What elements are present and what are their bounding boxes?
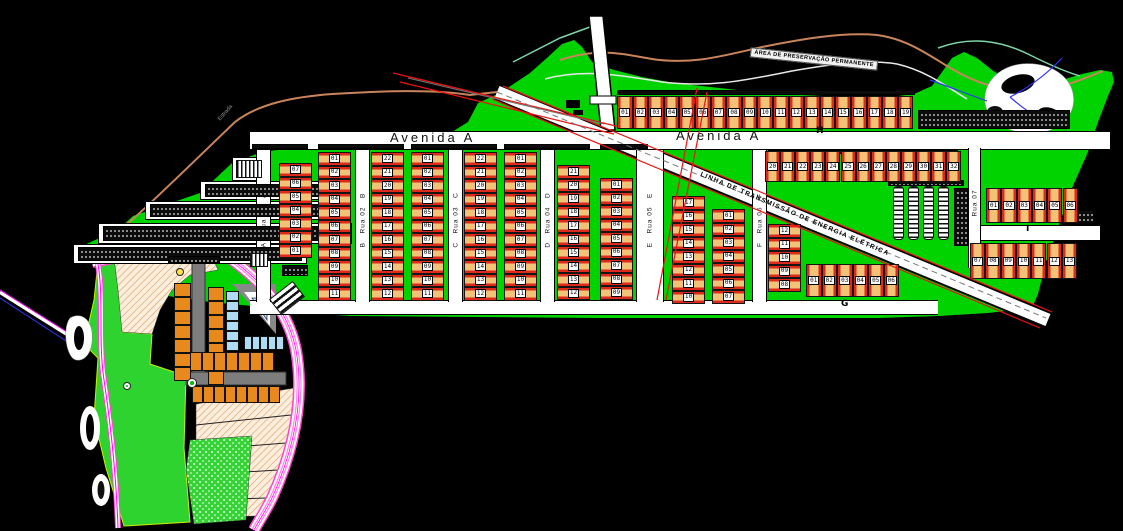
lot: 17 xyxy=(557,219,590,233)
lot-number: 16 xyxy=(568,235,579,244)
lot-number: 08 xyxy=(779,280,790,289)
lot-number: 03 xyxy=(290,219,301,228)
lot: 09 xyxy=(318,260,351,274)
sub-lot xyxy=(203,386,214,403)
sub-lot xyxy=(226,352,238,371)
lot-number: 03 xyxy=(515,181,526,190)
street-rua-03: C Rua 03 C xyxy=(448,150,463,302)
lot-number: 25 xyxy=(842,162,853,171)
lot: 04 xyxy=(504,193,537,207)
lot-number: 08 xyxy=(987,257,998,266)
sub-lot xyxy=(262,352,274,371)
lot-number: 09 xyxy=(611,288,622,297)
lot-number: 20 xyxy=(767,162,778,171)
lot: 13 xyxy=(371,274,404,288)
lot-number: 09 xyxy=(329,262,340,271)
lot-number: 09 xyxy=(1003,257,1014,266)
lot-number: 08 xyxy=(611,275,622,284)
lot-number: 11 xyxy=(683,279,694,288)
lot: 05 xyxy=(868,264,884,297)
lot: 11 xyxy=(504,287,537,301)
lot-number: 24 xyxy=(827,162,838,171)
lot: 10 xyxy=(1016,243,1031,279)
lot: 01 xyxy=(600,178,633,192)
lot-number: 05 xyxy=(870,276,881,285)
lot-number: 19 xyxy=(568,194,579,203)
lot: 05 xyxy=(318,206,351,220)
lot: 02 xyxy=(411,166,444,180)
lot-number: 11 xyxy=(1033,257,1044,266)
subdivision-hatched-field xyxy=(114,256,218,334)
lot-number: 07 xyxy=(329,235,340,244)
lot: 02 xyxy=(822,264,838,297)
lot-number: 09 xyxy=(744,108,755,117)
lot: 21 xyxy=(464,166,497,180)
lot-number: 31 xyxy=(933,162,944,171)
lot: 08 xyxy=(504,247,537,261)
lot-number: 18 xyxy=(568,208,579,217)
lot-number: 14 xyxy=(382,262,393,271)
lot-number: 14 xyxy=(568,262,579,271)
lot: 06 xyxy=(411,220,444,234)
lot-number: 06 xyxy=(723,279,734,288)
lot: 15 xyxy=(672,223,705,237)
sub-lot xyxy=(252,336,260,350)
lot-number: 21 xyxy=(382,168,393,177)
gate-structure xyxy=(573,110,583,115)
lot: 08 xyxy=(600,273,633,287)
lot: 18 xyxy=(464,206,497,220)
lot-number: 20 xyxy=(568,181,579,190)
lot-number: 07 xyxy=(422,235,433,244)
striped-structure xyxy=(250,253,268,267)
lot-number: 22 xyxy=(797,162,808,171)
lot-number: 02 xyxy=(422,168,433,177)
lake-island xyxy=(999,71,1037,97)
lot-number: 03 xyxy=(422,181,433,190)
lot: 04 xyxy=(279,204,312,218)
lot-number: 29 xyxy=(903,162,914,171)
lot-number: 01 xyxy=(619,108,630,117)
lot-number: 07 xyxy=(972,257,983,266)
sub-lot xyxy=(258,386,269,403)
lot-number: 05 xyxy=(682,108,693,117)
southwest-road-lines xyxy=(0,290,86,350)
lot: 11 xyxy=(672,277,705,291)
lot-number: 05 xyxy=(329,208,340,217)
lot-number: 22 xyxy=(382,154,393,163)
lot-number: 06 xyxy=(329,222,340,231)
lot-number: 17 xyxy=(475,222,486,231)
lot: 14 xyxy=(672,237,705,251)
lot: 20 xyxy=(765,151,780,182)
street-name-label: Rua 07 xyxy=(971,190,978,217)
lot: 16 xyxy=(557,233,590,247)
lot: 07 xyxy=(712,290,745,304)
lot: 11 xyxy=(768,238,801,252)
lot: 06 xyxy=(318,220,351,234)
lot-number: 15 xyxy=(683,225,694,234)
lot-number: 12 xyxy=(791,108,802,117)
lot-number: 06 xyxy=(697,108,708,117)
lot: 09 xyxy=(768,265,801,279)
lot: 02 xyxy=(504,166,537,180)
lot: 07 xyxy=(504,233,537,247)
lot-number: 32 xyxy=(948,162,959,171)
street-rua-05: E Rua 05 E xyxy=(636,150,664,302)
lot-number: 07 xyxy=(290,165,301,174)
lot: 19 xyxy=(371,193,404,207)
lot: 02 xyxy=(600,192,633,206)
lot-number: 06 xyxy=(290,179,301,188)
dotted-bar xyxy=(252,144,308,149)
lot-number: 10 xyxy=(683,293,694,302)
sub-lot xyxy=(192,386,203,403)
lot: 12 xyxy=(464,287,497,301)
lot-number: 12 xyxy=(568,289,579,298)
lot-number: 06 xyxy=(422,222,433,231)
lot: 04 xyxy=(853,264,869,297)
lot-number: 01 xyxy=(290,246,301,255)
street-name-label: D Rua 04 D xyxy=(544,192,551,247)
lot-number: 16 xyxy=(475,235,486,244)
lot: 12 xyxy=(371,287,404,301)
lot-number: 10 xyxy=(779,253,790,262)
sub-lot xyxy=(244,336,252,350)
lot-number: 13 xyxy=(806,108,817,117)
sub-lot xyxy=(214,352,226,371)
sub-lot xyxy=(226,331,239,341)
lot: 30 xyxy=(916,151,931,182)
lot-number: 05 xyxy=(422,208,433,217)
lot-number: 14 xyxy=(822,108,833,117)
lot-number: 15 xyxy=(475,249,486,258)
sub-lot xyxy=(226,291,239,301)
lot: 08 xyxy=(318,247,351,261)
lot: 04 xyxy=(712,250,745,264)
lot-number: 05 xyxy=(515,208,526,217)
lot: 02 xyxy=(633,96,649,129)
lot-number: 23 xyxy=(812,162,823,171)
lot: 10 xyxy=(768,251,801,265)
creek-line xyxy=(513,24,598,62)
sub-lot xyxy=(174,297,191,311)
lot: 19 xyxy=(557,192,590,206)
lot: 10 xyxy=(672,291,705,305)
street-g xyxy=(250,300,938,315)
lot-number: 12 xyxy=(382,289,393,298)
lot: 11 xyxy=(411,287,444,301)
lot-number: 04 xyxy=(666,108,677,117)
lot-number: 13 xyxy=(382,276,393,285)
lot: 21 xyxy=(371,166,404,180)
lot-number: 18 xyxy=(884,108,895,117)
lot-number: 02 xyxy=(1003,201,1014,210)
lot: 03 xyxy=(318,179,351,193)
lot-number: 01 xyxy=(611,180,622,189)
lot: 21 xyxy=(557,165,590,179)
lot: 11 xyxy=(773,96,789,129)
lot-number: 07 xyxy=(723,292,734,301)
lot-number: 14 xyxy=(475,262,486,271)
lot: 13 xyxy=(804,96,820,129)
lot: 17 xyxy=(867,96,883,129)
lot-number: 10 xyxy=(329,276,340,285)
lot-number: 19 xyxy=(900,108,911,117)
lot-number: 02 xyxy=(515,168,526,177)
lot: 03 xyxy=(712,236,745,250)
lot-number: 17 xyxy=(568,221,579,230)
lot: 12 xyxy=(789,96,805,129)
lot: 04 xyxy=(1032,188,1047,223)
sub-lot xyxy=(174,339,191,353)
lot: 14 xyxy=(820,96,836,129)
lot: 18 xyxy=(882,96,898,129)
lot: 08 xyxy=(768,278,801,292)
lot: 01 xyxy=(806,264,822,297)
lot: 02 xyxy=(1001,188,1016,223)
lot: 20 xyxy=(557,179,590,193)
lot: 05 xyxy=(504,206,537,220)
west-river-blobs xyxy=(66,316,110,506)
lot-number: 13 xyxy=(568,275,579,284)
lot-number: 16 xyxy=(853,108,864,117)
street-rua-04: D Rua 04 D xyxy=(540,150,555,302)
sub-lot xyxy=(225,386,236,403)
sub-lot xyxy=(226,321,239,331)
lot: 09 xyxy=(742,96,758,129)
lot-number: 12 xyxy=(475,289,486,298)
lot-number: 11 xyxy=(515,289,526,298)
lot-number: 03 xyxy=(650,108,661,117)
lot-number: 17 xyxy=(382,222,393,231)
lot-number: 17 xyxy=(683,198,694,207)
striped-structure xyxy=(236,160,262,178)
sub-lot xyxy=(226,341,239,351)
dotted-bar xyxy=(600,144,648,149)
sub-lot xyxy=(208,315,224,329)
field-division-lines xyxy=(196,415,291,500)
lot: 14 xyxy=(557,260,590,274)
lot: 03 xyxy=(411,179,444,193)
lot-number: 26 xyxy=(858,162,869,171)
lot: 27 xyxy=(871,151,886,182)
lot-number: 16 xyxy=(683,212,694,221)
lot-number: 11 xyxy=(779,240,790,249)
sub-lot xyxy=(208,371,224,385)
gray-centerline xyxy=(408,78,604,124)
lot-number: 19 xyxy=(382,195,393,204)
lot-number: 13 xyxy=(475,276,486,285)
lot: 06 xyxy=(884,264,900,297)
lot: 17 xyxy=(371,220,404,234)
lot-number: 18 xyxy=(475,208,486,217)
pink-west-road xyxy=(98,264,118,528)
lot: 05 xyxy=(411,206,444,220)
lot: 04 xyxy=(664,96,680,129)
lot: 15 xyxy=(371,247,404,261)
sub-lot xyxy=(247,386,258,403)
lot-number: 04 xyxy=(290,206,301,215)
stair-structure xyxy=(923,186,934,240)
lot: 12 xyxy=(768,224,801,238)
lot-number: 07 xyxy=(515,235,526,244)
stair-structure xyxy=(938,186,949,240)
marker-circle xyxy=(187,378,197,388)
sub-lot xyxy=(208,329,224,343)
lot: 15 xyxy=(557,246,590,260)
lot-number: 05 xyxy=(611,234,622,243)
lot: 15 xyxy=(464,247,497,261)
lot: 16 xyxy=(672,210,705,224)
lot: 32 xyxy=(946,151,961,182)
lot-number: 19 xyxy=(475,195,486,204)
lot-number: 10 xyxy=(422,276,433,285)
lot: 01 xyxy=(617,96,633,129)
lot: 12 xyxy=(672,264,705,278)
lot: 01 xyxy=(279,244,312,258)
lot: 20 xyxy=(464,179,497,193)
lot: 20 xyxy=(371,179,404,193)
lot-number: 09 xyxy=(779,267,790,276)
sub-lot xyxy=(208,301,224,315)
lot-number: 17 xyxy=(869,108,880,117)
lot: 05 xyxy=(712,263,745,277)
lot: 09 xyxy=(600,286,633,300)
lot: 05 xyxy=(679,96,695,129)
lot-number: 14 xyxy=(683,239,694,248)
street-rua-02: B Rua 02 B xyxy=(355,150,370,302)
lot: 29 xyxy=(901,151,916,182)
lot: 12 xyxy=(557,287,590,301)
lot: 22 xyxy=(371,152,404,166)
lot: 16 xyxy=(371,233,404,247)
lot: 01 xyxy=(318,152,351,166)
lot: 28 xyxy=(886,151,901,182)
lot-number: 06 xyxy=(1065,201,1076,210)
lot: 11 xyxy=(1031,243,1046,279)
lot-number: 01 xyxy=(422,154,433,163)
sub-lot xyxy=(174,325,191,339)
avenida-a-label: Avenida A xyxy=(390,130,475,145)
dotted-bar xyxy=(617,90,915,95)
estrada-label: Estrada xyxy=(217,104,234,122)
lot: 07 xyxy=(411,233,444,247)
access-road xyxy=(589,16,615,130)
lot-number: 04 xyxy=(515,195,526,204)
lot: 03 xyxy=(1017,188,1032,223)
lot-number: 05 xyxy=(723,265,734,274)
lot: 10 xyxy=(504,274,537,288)
lot-number: 04 xyxy=(723,252,734,261)
gate-structure xyxy=(566,100,580,108)
lot-number: 28 xyxy=(888,162,899,171)
lot-number: 11 xyxy=(422,289,433,298)
dotted-bar xyxy=(954,188,968,246)
lot-number: 07 xyxy=(713,108,724,117)
lot-number: 08 xyxy=(329,249,340,258)
gate-structure xyxy=(590,96,616,104)
block-letter: H xyxy=(816,126,824,136)
lot-number: 08 xyxy=(422,249,433,258)
dotted-bar xyxy=(205,184,333,197)
lot-number: 02 xyxy=(635,108,646,117)
lot-number: 21 xyxy=(475,168,486,177)
lot: 21 xyxy=(780,151,795,182)
lot-number: 04 xyxy=(329,195,340,204)
street-name-label: C Rua 03 C xyxy=(452,192,459,247)
lot: 24 xyxy=(825,151,840,182)
lot: 02 xyxy=(318,166,351,180)
lot: 04 xyxy=(411,193,444,207)
marker-dot xyxy=(190,381,194,385)
lot-number: 16 xyxy=(382,235,393,244)
marker-circle xyxy=(176,268,184,276)
lot: 09 xyxy=(504,260,537,274)
lot: 26 xyxy=(856,151,871,182)
lot-number: 03 xyxy=(1019,201,1030,210)
lot-number: 03 xyxy=(723,238,734,247)
lot: 06 xyxy=(504,220,537,234)
lot-number: 15 xyxy=(838,108,849,117)
lot: 12 xyxy=(1047,243,1062,279)
sub-lot xyxy=(250,352,262,371)
lot-number: 04 xyxy=(611,221,622,230)
lot: 09 xyxy=(1001,243,1016,279)
lot: 07 xyxy=(318,233,351,247)
lot: 03 xyxy=(837,264,853,297)
sub-lot xyxy=(174,283,191,297)
dotted-bar xyxy=(504,144,590,149)
lot: 03 xyxy=(504,179,537,193)
lot: 18 xyxy=(557,206,590,220)
lot-number: 01 xyxy=(329,154,340,163)
lot: 06 xyxy=(279,177,312,191)
lot-number: 01 xyxy=(808,276,819,285)
lot-number: 06 xyxy=(515,222,526,231)
lot: 13 xyxy=(557,273,590,287)
lot: 10 xyxy=(318,274,351,288)
lot: 19 xyxy=(464,193,497,207)
sub-lot xyxy=(260,336,268,350)
creek-line xyxy=(938,41,1080,76)
lot: 23 xyxy=(810,151,825,182)
lot-number: 01 xyxy=(515,154,526,163)
lot-number: 15 xyxy=(568,248,579,257)
sub-lot xyxy=(190,352,202,371)
sub-lot xyxy=(269,386,280,403)
lot: 04 xyxy=(600,219,633,233)
lot: 03 xyxy=(600,205,633,219)
lot: 06 xyxy=(600,246,633,260)
lot-number: 04 xyxy=(855,276,866,285)
lot: 03 xyxy=(648,96,664,129)
lot: 08 xyxy=(726,96,742,129)
sub-lot xyxy=(214,386,225,403)
lot: 14 xyxy=(371,260,404,274)
lot: 03 xyxy=(279,217,312,231)
lot: 16 xyxy=(464,233,497,247)
subdivision-gray-street xyxy=(186,372,286,385)
block-letter: I xyxy=(1026,224,1029,234)
avenida-a-label: Avenida A xyxy=(676,128,761,143)
lot: 18 xyxy=(371,206,404,220)
lot: 05 xyxy=(1047,188,1062,223)
street-name-label: E Rua 05 E xyxy=(647,193,654,248)
lot-number: 13 xyxy=(1064,257,1075,266)
lot: 15 xyxy=(835,96,851,129)
lot: 06 xyxy=(695,96,711,129)
